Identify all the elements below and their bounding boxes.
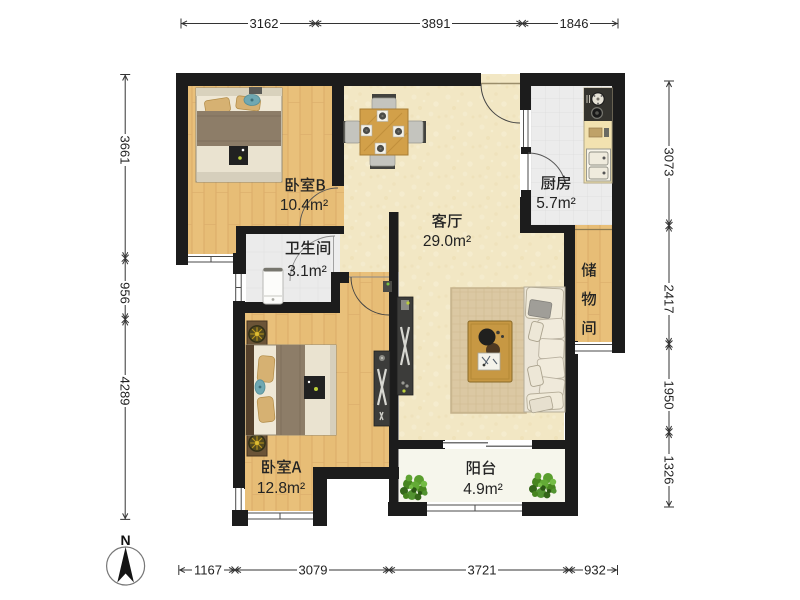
svg-text:10.4m²: 10.4m² — [280, 197, 328, 214]
svg-text:4.9m²: 4.9m² — [463, 481, 503, 498]
svg-text:3.1m²: 3.1m² — [287, 263, 327, 280]
svg-text:956: 956 — [118, 282, 133, 304]
svg-text:2417: 2417 — [662, 285, 677, 314]
svg-text:1167: 1167 — [194, 563, 222, 578]
svg-text:932: 932 — [584, 563, 606, 578]
svg-text:N: N — [121, 532, 131, 548]
svg-text:29.0m²: 29.0m² — [423, 233, 471, 250]
svg-text:1950: 1950 — [662, 381, 677, 410]
svg-text:4289: 4289 — [118, 377, 133, 406]
svg-text:3721: 3721 — [468, 563, 497, 578]
svg-text:1326: 1326 — [662, 456, 677, 485]
svg-text:5.7m²: 5.7m² — [536, 195, 576, 212]
svg-text:1846: 1846 — [560, 16, 589, 31]
svg-text:3661: 3661 — [118, 136, 133, 165]
svg-text:3891: 3891 — [422, 16, 451, 31]
svg-text:3079: 3079 — [299, 563, 328, 578]
svg-text:3162: 3162 — [250, 16, 279, 31]
svg-text:12.8m²: 12.8m² — [257, 480, 305, 497]
svg-text:3073: 3073 — [662, 148, 677, 177]
